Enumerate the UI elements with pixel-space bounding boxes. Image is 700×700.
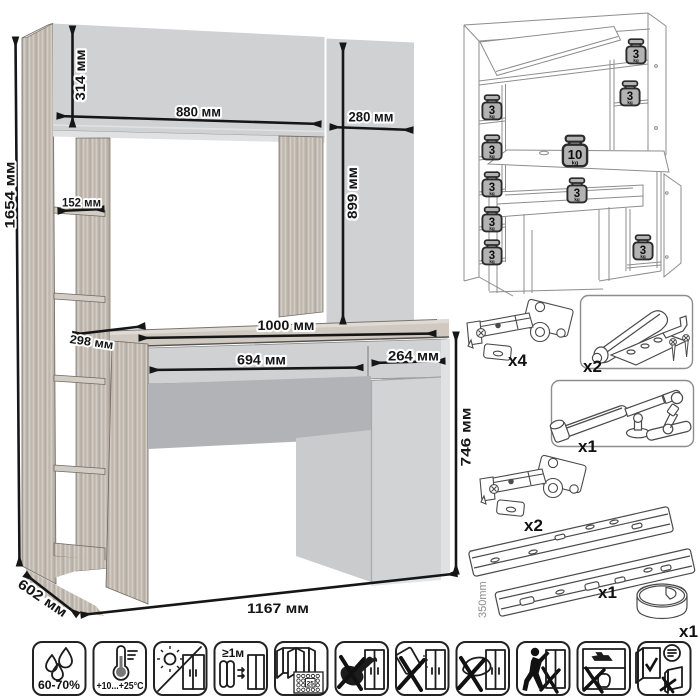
svg-text:x1: x1 [598,583,617,602]
svg-text:x2: x2 [524,516,543,535]
svg-text:264 мм: 264 мм [388,348,439,364]
svg-text:899 мм: 899 мм [344,167,360,219]
svg-text:60-70%: 60-70% [38,678,80,692]
svg-text:kg: kg [572,160,579,166]
svg-text:350mm: 350mm [477,581,489,618]
svg-text:746 мм: 746 мм [458,408,474,467]
svg-text:25: 25 [307,681,315,688]
svg-text:≥1м: ≥1м [222,646,244,660]
svg-text:280 мм: 280 мм [349,109,394,125]
svg-text:1167 мм: 1167 мм [247,600,309,616]
svg-text:+10...+25°C: +10...+25°C [97,681,144,692]
svg-text:314 мм: 314 мм [72,50,88,101]
svg-text:x1: x1 [578,437,597,456]
svg-text:152 мм: 152 мм [62,196,101,210]
svg-text:x2: x2 [583,357,602,376]
svg-text:880 мм: 880 мм [176,104,221,120]
svg-text:x1: x1 [679,622,698,641]
svg-text:1000 мм: 1000 мм [258,317,315,333]
svg-text:694 мм: 694 мм [237,352,286,368]
svg-text:1654 мм: 1654 мм [2,162,18,229]
svg-text:x4: x4 [508,351,527,370]
